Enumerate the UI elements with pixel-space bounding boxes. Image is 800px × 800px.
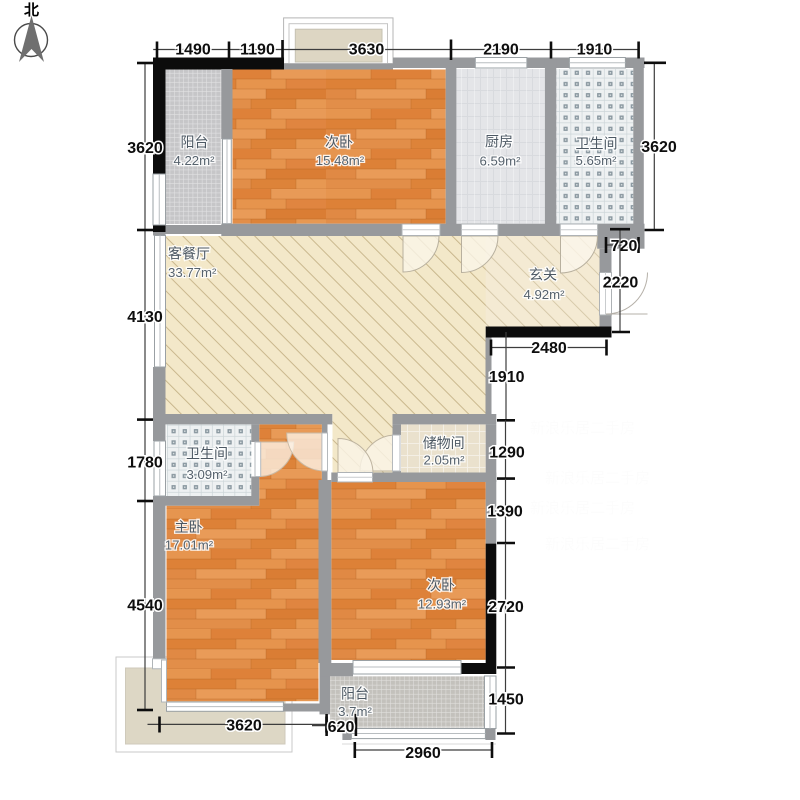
svg-text:1190: 1190: [240, 41, 275, 58]
svg-text:2190: 2190: [483, 41, 519, 58]
svg-text:3.7m²: 3.7m²: [338, 704, 372, 719]
svg-text:33.77m²: 33.77m²: [168, 265, 217, 280]
svg-text:1390: 1390: [487, 504, 523, 521]
svg-text:新浪乐居二手房: 新浪乐居二手房: [545, 470, 650, 487]
svg-text:1910: 1910: [489, 369, 525, 386]
svg-text:客餐厅: 客餐厅: [168, 245, 210, 261]
svg-text:新浪乐居二手房: 新浪乐居二手房: [545, 536, 650, 553]
svg-text:卫生间: 卫生间: [186, 446, 228, 462]
svg-text:次卧: 次卧: [325, 134, 353, 150]
svg-text:3620: 3620: [641, 139, 677, 156]
svg-text:3620: 3620: [127, 140, 163, 157]
svg-text:4540: 4540: [127, 598, 163, 615]
svg-text:17.01m²: 17.01m²: [165, 538, 214, 553]
svg-text:新浪乐居二手房: 新浪乐居二手房: [530, 420, 635, 437]
svg-text:玄关: 玄关: [529, 267, 557, 283]
svg-text:2960: 2960: [405, 745, 441, 762]
svg-text:15.48m²: 15.48m²: [316, 153, 365, 168]
svg-text:厨房: 厨房: [485, 134, 513, 150]
svg-text:阳台: 阳台: [341, 685, 369, 701]
svg-text:4.92m²: 4.92m²: [523, 287, 565, 302]
svg-text:720: 720: [611, 238, 638, 255]
svg-text:2480: 2480: [531, 340, 567, 357]
svg-text:3.09m²: 3.09m²: [186, 467, 228, 482]
svg-text:2220: 2220: [603, 275, 639, 292]
svg-text:5.65m²: 5.65m²: [575, 153, 617, 168]
svg-text:储物间: 储物间: [423, 435, 465, 451]
svg-text:1450: 1450: [488, 692, 524, 709]
svg-text:6.59m²: 6.59m²: [479, 154, 521, 169]
svg-text:1910: 1910: [577, 41, 613, 58]
svg-text:阳台: 阳台: [181, 134, 209, 150]
svg-text:4.22m²: 4.22m²: [173, 153, 215, 168]
svg-text:主卧: 主卧: [175, 519, 203, 535]
svg-text:3620: 3620: [226, 718, 262, 735]
svg-text:2.05m²: 2.05m²: [423, 453, 465, 468]
svg-text:新浪乐居二手房: 新浪乐居二手房: [530, 500, 635, 517]
svg-text:1490: 1490: [175, 41, 211, 58]
svg-text:次卧: 次卧: [427, 577, 455, 593]
svg-text:卫生间: 卫生间: [576, 136, 618, 152]
svg-text:2720: 2720: [488, 599, 524, 616]
svg-text:620: 620: [328, 719, 355, 736]
svg-text:1780: 1780: [127, 455, 163, 472]
svg-text:12.93m²: 12.93m²: [418, 597, 467, 612]
svg-text:4130: 4130: [127, 309, 163, 326]
svg-text:3630: 3630: [349, 41, 385, 58]
svg-text:1290: 1290: [489, 445, 525, 462]
